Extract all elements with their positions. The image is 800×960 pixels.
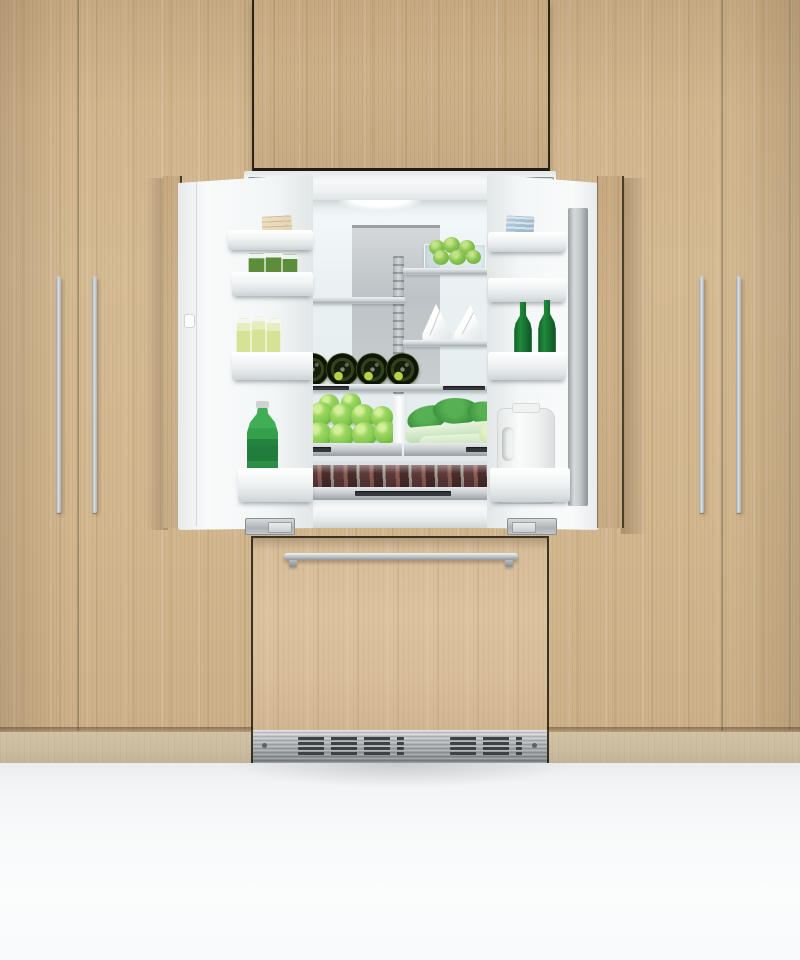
right-door-shadow [621,178,647,534]
cabinet-handle [56,277,61,513]
kitchen-scene [0,0,800,960]
vacuum-packed-meat [308,465,488,487]
cabinet-seam-right [721,0,723,731]
flip-mullion [568,208,588,506]
slat-row [298,747,404,750]
milk-jug-cap [512,403,540,413]
ceiling-light [338,200,422,210]
freezer-handle-post [505,560,513,567]
bottle-cap [256,401,269,408]
door-stop-pin [184,314,195,328]
lime [449,250,466,265]
lime [466,250,481,264]
cabinet-handle [699,277,704,513]
vent-grille [251,730,549,763]
fridge-left-door [163,174,313,530]
meat-drawer-front [293,487,507,500]
freezer-handle-post [289,560,297,567]
slat-row [450,742,522,745]
bottom-hinge-left [245,518,295,535]
wine-rack-slot [307,386,349,390]
cabinet-handle [736,277,741,513]
right-door-bin-4 [490,468,570,502]
cabinet-handle [92,277,97,513]
wine-bottle [326,353,359,386]
unit-floor-shadow [228,763,572,789]
lime [433,250,449,265]
left-door-bin-1 [228,230,313,250]
fridge-interior [283,200,517,506]
right-door-bin-1 [488,232,566,252]
freezer-drawer-handle [284,553,518,560]
right-door-bin-3 [488,352,566,380]
right-door-bin-2 [488,278,566,302]
freezer-panel-wood [253,538,547,730]
slat-row [450,737,522,740]
grille-slats-left [298,737,404,757]
cabinet-seam-far-right [789,0,791,731]
bottom-hinge-left-plate [268,522,292,533]
left-door-bin-3 [232,352,313,380]
wine-bottle [356,353,389,386]
milk-jug-handle [502,427,514,461]
slat-row [298,737,404,740]
freezer-panel-top-shadow [253,538,547,550]
bottom-hinge-right [507,518,557,535]
slat-row [298,742,404,745]
bottom-hinge-right-plate [512,522,536,533]
right-door-wood-edge [597,176,624,528]
freezer-drawer-panel [251,536,549,732]
slat-row [450,752,522,755]
above-fridge-panel [252,0,550,171]
slat-row [298,752,404,755]
left-door-edge-line [196,182,197,526]
grille-screw [262,743,267,748]
grille-screw [532,743,537,748]
wine-rack-rail [283,384,515,392]
wrapped-parcel [454,304,485,340]
slat-row [450,747,522,750]
wine-rack-slot [443,386,485,390]
meat-drawer-slot [355,491,451,496]
cabinet-seam-left [77,0,79,731]
left-door-bin-4 [238,468,313,502]
wine-bottle [386,353,419,386]
floor [0,763,800,960]
grille-slats-right [450,737,522,757]
fridge-right-door [487,174,623,530]
bottle-label [247,439,278,461]
left-door-bin-2 [232,272,313,296]
